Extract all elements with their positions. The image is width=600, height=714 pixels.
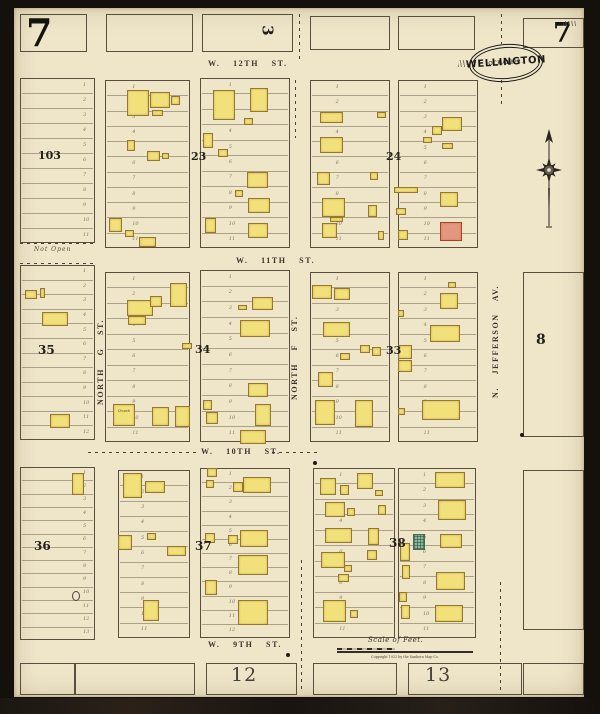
lot-number: 5 xyxy=(83,143,93,149)
building-footprint xyxy=(255,404,271,426)
building-footprint xyxy=(228,535,238,544)
building-footprint xyxy=(435,472,465,488)
lot-line xyxy=(22,613,93,614)
lot-number: 8 xyxy=(424,385,434,391)
lot-number: 11 xyxy=(141,627,151,633)
building-footprint xyxy=(238,305,247,310)
lot-number: 4 xyxy=(229,322,239,328)
lot-number: 9 xyxy=(83,203,93,209)
lot-line xyxy=(315,499,393,500)
lot-number: 7 xyxy=(83,173,93,179)
lot-line xyxy=(312,318,388,319)
lot-number: 7 xyxy=(229,175,239,181)
tank-circle xyxy=(72,591,80,601)
lot-number: 9 xyxy=(229,585,239,591)
lot-line xyxy=(202,496,288,497)
book-binding-edge xyxy=(0,698,600,714)
building-footprint xyxy=(435,605,463,622)
lot-number: 5 xyxy=(336,339,346,345)
lot-line xyxy=(312,217,388,218)
city-block-outline xyxy=(523,663,584,695)
city-block-outline xyxy=(202,14,293,52)
lot-number: 10 xyxy=(336,222,346,228)
building-footprint xyxy=(436,572,465,590)
building-footprint xyxy=(394,187,418,193)
lot-number: 4 xyxy=(229,129,239,135)
lot-line xyxy=(202,364,288,365)
city-block-outline xyxy=(313,663,397,695)
lot-number: 5 xyxy=(229,337,239,343)
lot-line xyxy=(22,93,93,94)
building-footprint xyxy=(334,288,350,300)
lot-line xyxy=(120,592,188,593)
lot-number: 7 xyxy=(229,369,239,375)
scale-bar xyxy=(337,648,473,654)
lot-number: 10 xyxy=(229,222,239,228)
sheet-note-scribble xyxy=(563,21,576,26)
lot-number: 2 xyxy=(83,98,93,104)
building-footprint xyxy=(250,88,268,112)
building-footprint xyxy=(398,408,405,415)
block-number-35: 35 xyxy=(38,344,55,356)
building-footprint xyxy=(139,237,156,247)
building-footprint xyxy=(218,149,228,157)
building-footprint xyxy=(360,345,370,353)
lot-line xyxy=(22,411,93,412)
lot-number: 9 xyxy=(229,400,239,406)
lot-number: 7 xyxy=(336,176,346,182)
street-centerline-dashed xyxy=(20,243,95,244)
lot-line xyxy=(22,138,93,139)
building-footprint xyxy=(413,534,425,550)
street-label-w-9th: W. 9TH ST. xyxy=(208,641,282,649)
lot-line xyxy=(400,156,476,157)
lot-line xyxy=(312,365,388,366)
lot-line xyxy=(22,228,93,229)
lot-number: 6 xyxy=(141,551,151,557)
lot-number: 3 xyxy=(229,500,239,506)
lot-number: 4 xyxy=(229,515,239,521)
lot-line xyxy=(22,560,93,561)
building-footprint xyxy=(145,481,165,493)
map-sheet: 1234567891011123456789101112345678910111… xyxy=(14,8,584,697)
lot-line xyxy=(22,520,93,521)
building-footprint xyxy=(357,473,373,489)
lot-line xyxy=(22,198,93,199)
building-footprint xyxy=(440,293,458,309)
lot-line xyxy=(315,592,393,593)
block-number-34: 34 xyxy=(195,344,210,355)
lot-number: 9 xyxy=(83,577,93,583)
lot-line xyxy=(107,141,188,142)
building-footprint xyxy=(338,574,349,582)
building-footprint xyxy=(240,430,266,444)
church-label: Church xyxy=(111,409,137,413)
lot-line xyxy=(400,202,476,203)
lot-number: 3 xyxy=(336,308,346,314)
street-centerline-dashed xyxy=(299,14,300,62)
lot-number: 4 xyxy=(83,511,93,517)
building-footprint xyxy=(170,283,187,307)
lot-number: 11 xyxy=(83,604,93,610)
block-number-3: 3 xyxy=(260,25,275,35)
lot-number: 5 xyxy=(424,146,434,152)
lot-number: 3 xyxy=(424,115,434,121)
street-label-n-jefferson: N. JEFFERSON AV. xyxy=(492,282,500,398)
lot-number: 6 xyxy=(83,342,93,348)
city-block-outline xyxy=(310,16,390,50)
block-number-38: 38 xyxy=(389,537,406,549)
hydrant-dot xyxy=(313,461,317,465)
lot-line xyxy=(22,309,93,310)
building-footprint xyxy=(448,282,456,288)
lot-number: 4 xyxy=(339,519,349,525)
building-footprint xyxy=(355,400,373,427)
building-footprint xyxy=(207,468,217,477)
building-footprint xyxy=(378,505,386,515)
city-block-outline xyxy=(398,80,478,248)
compass-rose-icon xyxy=(534,126,564,238)
lot-line xyxy=(107,202,188,203)
lot-number: 11 xyxy=(336,237,346,243)
lot-number: 4 xyxy=(336,130,346,136)
building-footprint xyxy=(248,198,270,213)
lot-number: 10 xyxy=(132,222,142,228)
lot-line xyxy=(22,338,93,339)
building-footprint xyxy=(440,192,458,207)
lot-number: 9 xyxy=(423,596,433,602)
lot-number: 3 xyxy=(132,115,142,121)
building-footprint xyxy=(322,198,345,217)
street-centerline-dashed xyxy=(88,452,198,453)
lot-number: 11 xyxy=(423,627,433,633)
lot-line xyxy=(107,380,188,381)
building-footprint xyxy=(375,490,383,496)
lot-line xyxy=(120,516,188,517)
building-footprint xyxy=(252,297,273,310)
lot-number: 1 xyxy=(83,83,93,89)
lot-number: 1 xyxy=(336,85,346,91)
lot-number: 4 xyxy=(83,128,93,134)
building-footprint xyxy=(398,360,412,372)
lot-number: 8 xyxy=(83,564,93,570)
building-footprint xyxy=(143,600,159,621)
lot-number: 6 xyxy=(229,160,239,166)
building-footprint xyxy=(203,133,213,148)
lot-number: 9 xyxy=(83,386,93,392)
lot-line xyxy=(312,303,388,304)
lot-line xyxy=(107,318,188,319)
lot-number: 10 xyxy=(83,401,93,407)
lot-number: 7 xyxy=(424,369,434,375)
building-footprint xyxy=(152,407,169,426)
building-footprint xyxy=(440,222,462,241)
building-footprint xyxy=(315,400,335,425)
lot-number: 7 xyxy=(424,176,434,182)
lot-number: 9 xyxy=(132,207,142,213)
block-number-36: 36 xyxy=(34,540,51,552)
lot-number: 5 xyxy=(229,529,239,535)
lot-number: 6 xyxy=(423,550,433,556)
lot-line xyxy=(400,303,476,304)
building-footprint xyxy=(171,96,180,105)
building-footprint xyxy=(370,172,378,180)
lot-line xyxy=(22,123,93,124)
lot-number: 5 xyxy=(83,524,93,530)
building-footprint xyxy=(213,90,235,120)
lot-number: 11 xyxy=(229,431,239,437)
building-footprint xyxy=(430,325,460,342)
lot-line xyxy=(22,168,93,169)
block-number-8: 8 xyxy=(536,333,546,347)
lot-number: 2 xyxy=(132,292,142,298)
lot-line xyxy=(107,427,188,428)
building-footprint xyxy=(240,530,268,547)
lot-number: 4 xyxy=(141,520,151,526)
copyright-line: Copyright 1922 by the Sanborn Map Co. xyxy=(361,655,449,659)
lot-line xyxy=(120,501,188,502)
lot-number: 3 xyxy=(83,113,93,119)
lot-line xyxy=(400,95,476,96)
lot-number: 8 xyxy=(83,371,93,377)
lot-number: 10 xyxy=(229,416,239,422)
lot-number: 6 xyxy=(132,161,142,167)
lot-line xyxy=(202,395,288,396)
building-footprint xyxy=(206,480,214,488)
lot-number: 8 xyxy=(132,385,142,391)
building-footprint xyxy=(175,406,190,427)
lot-line xyxy=(22,396,93,397)
lot-line xyxy=(202,286,288,287)
building-footprint xyxy=(150,296,162,307)
building-footprint xyxy=(340,485,349,495)
building-footprint xyxy=(127,90,149,116)
building-footprint xyxy=(147,533,156,540)
lot-number: 2 xyxy=(336,100,346,106)
lot-line xyxy=(400,380,476,381)
street-label-w-11th: W. 11TH ST. xyxy=(236,257,315,265)
building-footprint xyxy=(205,580,217,595)
lot-line xyxy=(22,108,93,109)
lot-number: 8 xyxy=(336,385,346,391)
block-number-13: 13 xyxy=(425,666,451,685)
building-footprint xyxy=(323,600,346,622)
lot-number: 4 xyxy=(132,130,142,136)
building-footprint xyxy=(240,320,270,337)
lot-number: 4 xyxy=(423,519,433,525)
building-footprint xyxy=(322,223,337,238)
lot-number: 5 xyxy=(229,145,239,151)
building-footprint xyxy=(25,290,37,299)
lot-number: 9 xyxy=(336,400,346,406)
building-footprint xyxy=(347,508,355,516)
building-footprint xyxy=(109,218,122,232)
lot-number: 1 xyxy=(229,472,239,478)
lot-number: 1 xyxy=(336,277,346,283)
lot-number: 7 xyxy=(83,357,93,363)
lot-line xyxy=(312,427,388,428)
lot-line xyxy=(202,186,288,187)
building-footprint xyxy=(368,205,377,217)
lot-line xyxy=(107,334,188,335)
lot-number: 11 xyxy=(132,431,142,437)
building-footprint xyxy=(372,347,381,356)
building-footprint xyxy=(125,230,134,237)
lot-line xyxy=(22,507,93,508)
lot-number: 6 xyxy=(229,353,239,359)
building-footprint xyxy=(422,400,460,420)
building-footprint xyxy=(440,534,462,548)
lot-number: 12 xyxy=(83,430,93,436)
stamp-state: KAS. xyxy=(498,59,515,66)
lot-number: 3 xyxy=(424,308,434,314)
lot-line xyxy=(22,213,93,214)
building-footprint xyxy=(378,231,384,240)
building-footprint xyxy=(368,528,379,545)
building-footprint xyxy=(248,223,268,238)
building-footprint xyxy=(147,151,160,161)
building-footprint xyxy=(50,414,70,428)
lot-number: 6 xyxy=(424,161,434,167)
lot-line xyxy=(22,367,93,368)
lot-line xyxy=(107,396,188,397)
lot-number: 1 xyxy=(229,83,239,89)
building-footprint xyxy=(423,137,432,143)
lot-number: 3 xyxy=(423,504,433,510)
lot-line xyxy=(400,396,476,397)
building-footprint xyxy=(205,218,216,233)
building-footprint xyxy=(432,126,442,135)
lot-line xyxy=(202,202,288,203)
lot-line xyxy=(202,155,288,156)
lot-line xyxy=(400,217,476,218)
lot-number: 6 xyxy=(132,354,142,360)
sheet-number-top-left: 7 xyxy=(26,14,52,52)
lot-number: 8 xyxy=(424,192,434,198)
building-footprint xyxy=(320,112,343,123)
lot-line xyxy=(22,353,93,354)
lot-number: 1 xyxy=(229,275,239,281)
lot-number: 11 xyxy=(424,431,434,437)
lot-number: 2 xyxy=(424,100,434,106)
city-block-outline xyxy=(20,663,75,695)
lot-number: 8 xyxy=(229,384,239,390)
lot-line xyxy=(107,126,188,127)
lot-number: 10 xyxy=(424,222,434,228)
lot-line xyxy=(400,141,476,142)
street-label-north-f: NORTH F ST. xyxy=(291,312,299,400)
lot-number: 4 xyxy=(83,313,93,319)
lot-number: 7 xyxy=(83,551,93,557)
lot-line xyxy=(22,280,93,281)
hydrant-dot xyxy=(520,433,524,437)
block-number-37: 37 xyxy=(195,540,212,552)
lot-number: 1 xyxy=(141,475,151,481)
lot-line xyxy=(202,426,288,427)
lot-line xyxy=(400,318,476,319)
lot-number: 1 xyxy=(83,269,93,275)
lot-number: 3 xyxy=(83,497,93,503)
scanned-map-photo: 1234567891011123456789101112345678910111… xyxy=(0,0,600,714)
lot-number: 1 xyxy=(424,277,434,283)
lot-number: 10 xyxy=(83,218,93,224)
building-footprint xyxy=(182,343,192,349)
lot-line xyxy=(107,172,188,173)
lot-line xyxy=(400,427,476,428)
lot-line xyxy=(202,233,288,234)
lot-number: 2 xyxy=(229,290,239,296)
lot-number: 1 xyxy=(423,473,433,479)
building-footprint xyxy=(377,112,386,118)
lot-line xyxy=(315,576,393,577)
lot-line xyxy=(202,596,288,597)
street-label-w-12th: W. 12TH ST. xyxy=(208,60,288,68)
lot-number: 8 xyxy=(336,192,346,198)
lot-number: 6 xyxy=(336,161,346,167)
street-centerline-dashed xyxy=(20,263,95,264)
lot-line xyxy=(120,531,188,532)
lot-line xyxy=(22,600,93,601)
building-footprint xyxy=(247,172,268,188)
lot-number: 6 xyxy=(83,537,93,543)
lot-number: 10 xyxy=(423,612,433,618)
lot-number: 3 xyxy=(83,298,93,304)
lot-line xyxy=(312,187,388,188)
lot-number: 8 xyxy=(141,582,151,588)
lot-number: 6 xyxy=(424,354,434,360)
lot-line xyxy=(120,577,188,578)
block-number-23: 23 xyxy=(191,151,206,162)
building-footprint xyxy=(203,400,212,410)
city-block-outline xyxy=(523,272,584,437)
lot-number: 9 xyxy=(229,206,239,212)
lot-number: 1 xyxy=(83,471,93,477)
lot-line xyxy=(400,172,476,173)
lot-number: 12 xyxy=(229,628,239,634)
building-footprint xyxy=(244,118,253,125)
lot-line xyxy=(202,348,288,349)
lot-line xyxy=(400,561,474,562)
building-footprint xyxy=(128,316,146,325)
building-footprint xyxy=(233,482,243,492)
lot-line xyxy=(400,623,474,624)
lot-number: 10 xyxy=(83,590,93,596)
scale-of-feet-label: Scale of Feet. xyxy=(368,636,423,644)
building-footprint xyxy=(330,217,343,222)
building-footprint xyxy=(167,546,186,556)
building-footprint xyxy=(238,555,268,575)
lot-line xyxy=(400,111,476,112)
lot-number: 8 xyxy=(83,188,93,194)
lot-number: 11 xyxy=(229,237,239,243)
lot-line xyxy=(202,301,288,302)
lot-line xyxy=(202,553,288,554)
lot-line xyxy=(22,573,93,574)
building-footprint xyxy=(162,153,169,159)
building-footprint xyxy=(248,383,268,397)
lot-number: 7 xyxy=(132,369,142,375)
lot-number: 11 xyxy=(424,237,434,243)
lot-number: 2 xyxy=(83,284,93,290)
building-footprint xyxy=(235,190,243,197)
building-footprint xyxy=(320,137,343,153)
lot-number: 1 xyxy=(339,473,349,479)
lot-number: 2 xyxy=(424,292,434,298)
lot-number: 2 xyxy=(83,484,93,490)
lot-line xyxy=(400,592,474,593)
building-footprint xyxy=(398,310,404,317)
lot-number: 11 xyxy=(83,233,93,239)
